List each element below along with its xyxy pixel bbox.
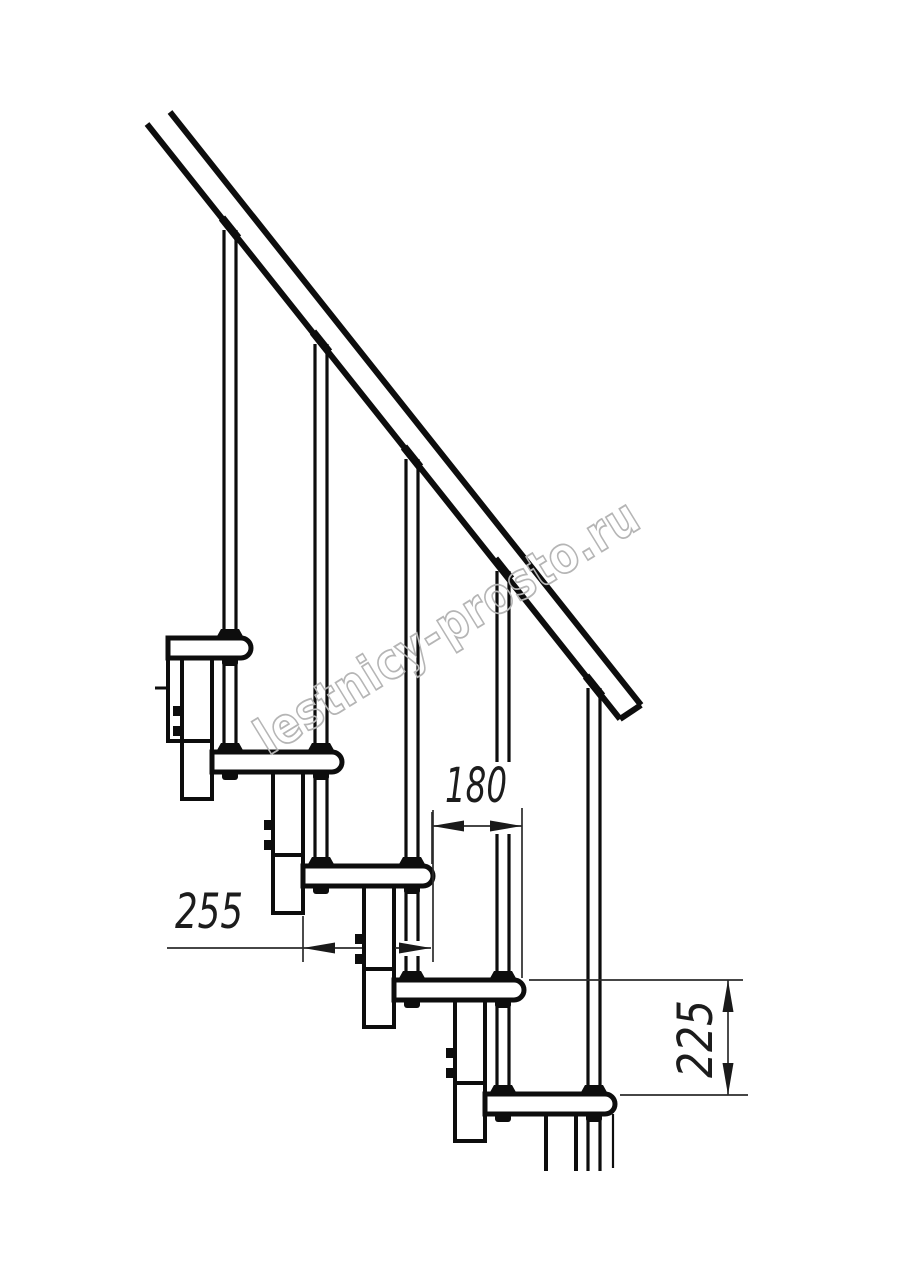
clamp-nut-icon [495, 1112, 511, 1122]
clamp-foot-icon [398, 971, 426, 980]
bolt-icon [264, 820, 273, 830]
column-module-cropped [546, 1114, 576, 1171]
clamp-nut-icon [404, 884, 420, 894]
dim-label-225: 225 [668, 1000, 724, 1078]
column-module [355, 886, 394, 1027]
dimension-riser-height: 225 [529, 980, 748, 1095]
column-module [173, 658, 212, 799]
clamp-nut-icon [495, 998, 511, 1008]
clamp-foot-icon [489, 971, 517, 980]
column-module [446, 1000, 485, 1141]
step-tread [168, 638, 251, 658]
arrow-right-icon [490, 821, 522, 832]
clamp-nut-icon [404, 998, 420, 1008]
column-module [264, 772, 303, 913]
step-tread [303, 866, 433, 886]
arrow-left-icon [303, 943, 335, 954]
dim-label-255: 255 [175, 884, 243, 940]
bolt-icon [446, 1048, 455, 1058]
arrow-right-icon [399, 943, 431, 954]
bolt-icon [355, 934, 364, 944]
clamp-foot-icon [307, 743, 335, 752]
clamp-nut-icon [586, 1112, 602, 1122]
clamp-foot-icon [489, 1085, 517, 1094]
bolt-icon [355, 954, 364, 964]
clamp-foot-icon [398, 857, 426, 866]
bolt-icon [264, 840, 273, 850]
step-tread [394, 980, 524, 1000]
arrow-down-icon [723, 1063, 734, 1095]
clamp-foot-icon [307, 857, 335, 866]
clamp-foot-icon [216, 743, 244, 752]
clamp-nut-icon [222, 656, 238, 666]
bolt-icon [446, 1068, 455, 1078]
staircase-drawing: 180 255 225 lestnicy-prosto.ru [0, 0, 914, 1280]
dim-label-180: 180 [445, 758, 507, 814]
clamp-foot-icon [580, 1085, 608, 1094]
clamp-foot-icon [216, 629, 244, 638]
drawing-canvas: 180 255 225 lestnicy-prosto.ru [0, 0, 914, 1280]
clamp-nut-icon [222, 770, 238, 780]
arrow-left-icon [432, 821, 464, 832]
arrow-up-icon [723, 980, 734, 1012]
clamp-nut-icon [313, 770, 329, 780]
clamp-nut-icon [313, 884, 329, 894]
step-tread [485, 1094, 615, 1114]
